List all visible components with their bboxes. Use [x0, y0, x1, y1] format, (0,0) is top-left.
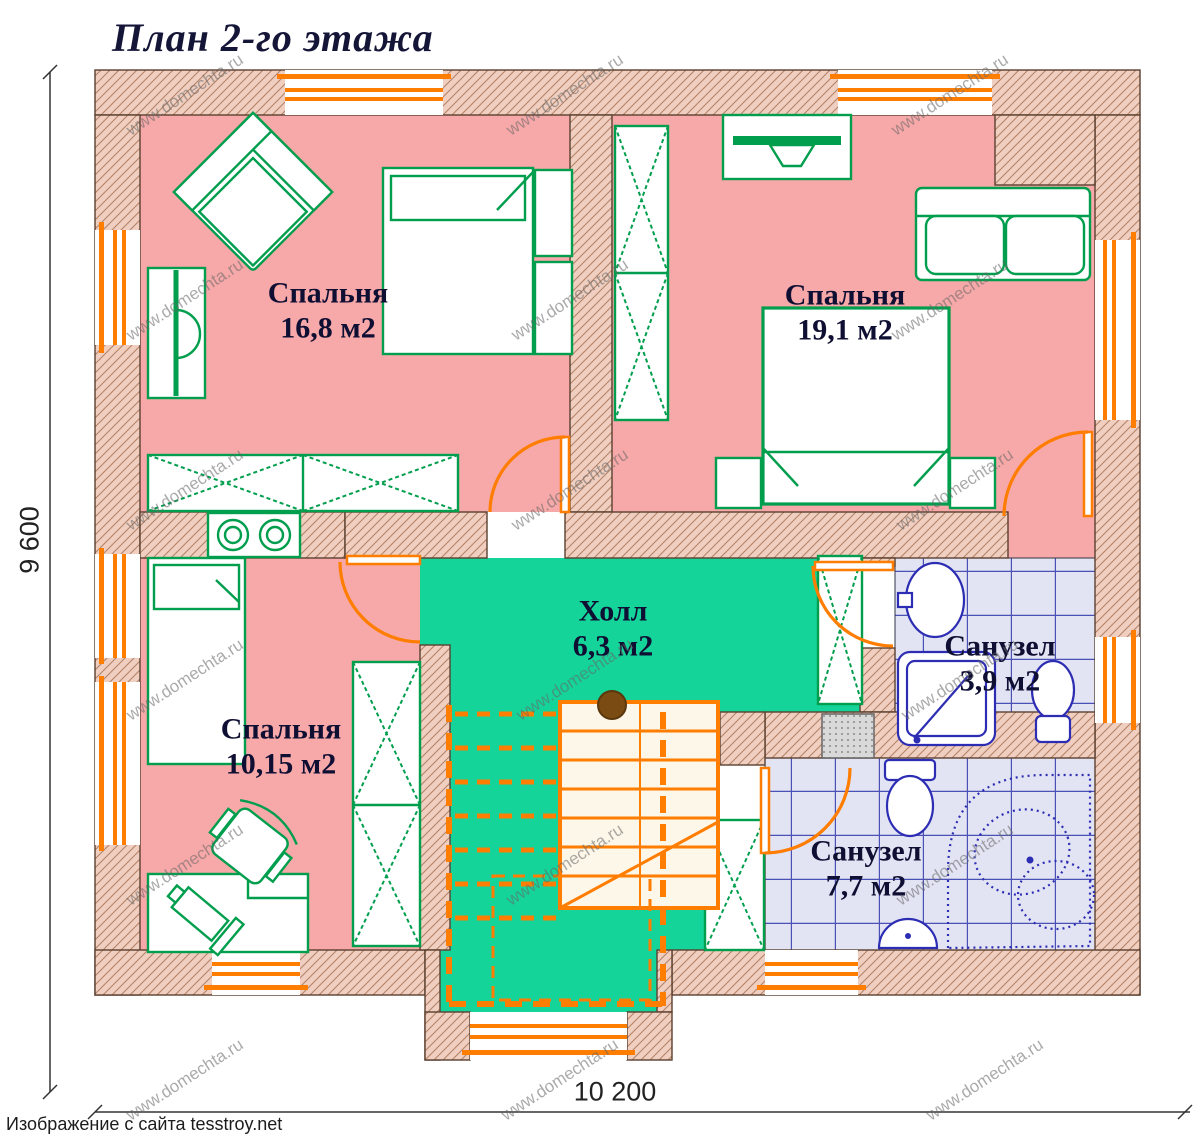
wardrobe: [353, 662, 420, 946]
chimney-block: [995, 115, 1095, 185]
single-bed: [148, 558, 245, 764]
wall-hall-bath-upper: [720, 712, 765, 765]
dresser-with-mirror: [148, 268, 205, 398]
nightstand: [950, 458, 995, 508]
floor-plan-page: План 2-го этажа Спальня 16,8 м2 Спальня …: [0, 0, 1200, 1139]
wardrobe: [818, 556, 862, 704]
wardrobe: [615, 126, 668, 420]
double-bed: [383, 168, 572, 354]
wall-bedroom1-bedroom2: [570, 115, 612, 512]
wall-bedroom3-hall: [420, 645, 450, 950]
window-bedroom3-bottom: [204, 950, 308, 995]
window-bedroom3-left-lower: [95, 676, 140, 851]
window-bedroom3-left-upper: [95, 548, 140, 664]
window-bedroom2-top: [830, 70, 1000, 115]
floor-plan-drawing: [0, 0, 1200, 1139]
nightstand: [535, 262, 572, 354]
window-bay-bottom: [462, 1012, 635, 1060]
toilet: [885, 760, 935, 836]
hall-door-gap: [420, 558, 450, 645]
wall-mid-b: [345, 512, 487, 558]
wall-bottom-right: [672, 950, 1140, 995]
window-bathroom-small-right: [1095, 630, 1140, 730]
sofa: [916, 188, 1090, 280]
nightstand: [535, 170, 572, 256]
toilet: [1032, 661, 1074, 742]
nightstand: [716, 458, 761, 508]
window-bathroom-large-bottom: [757, 950, 866, 995]
window-bedroom1-top: [277, 70, 451, 115]
cabinet-with-rings: [208, 513, 300, 557]
source-caption: Изображение с сайта tesstroy.net: [6, 1114, 282, 1135]
window-bedroom2-right: [1095, 232, 1140, 428]
wall-bath-small-left: [860, 648, 895, 712]
bathroom-large-floor: [765, 758, 1095, 950]
low-wardrobe: [148, 455, 458, 511]
washing-machine: [822, 714, 874, 758]
wall-mid-c: [565, 512, 1008, 558]
desk-with-computer: [148, 874, 308, 955]
shower-cabin: [898, 652, 995, 745]
newel-post: [598, 691, 626, 719]
tv-stand: [723, 115, 851, 179]
window-bedroom1-left: [95, 222, 140, 353]
bedroom-2-vestibule-floor: [1008, 512, 1095, 558]
